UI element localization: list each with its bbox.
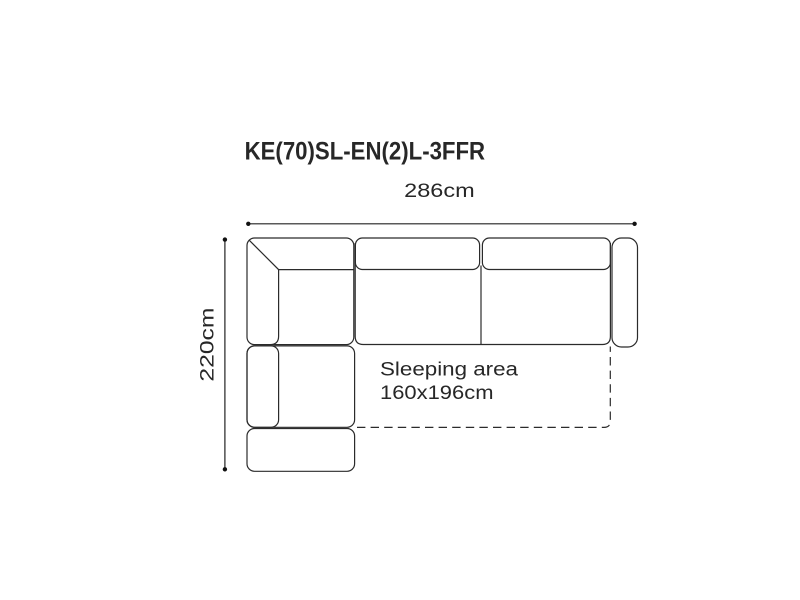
svg-text:286cm: 286cm: [404, 180, 475, 202]
svg-text:220cm: 220cm: [197, 308, 219, 382]
svg-text:Sleeping area: Sleeping area: [380, 358, 518, 380]
svg-text:KE(70)SL-EN(2)L-3FFR: KE(70)SL-EN(2)L-3FFR: [245, 137, 486, 165]
svg-text:160x196cm: 160x196cm: [380, 382, 494, 404]
